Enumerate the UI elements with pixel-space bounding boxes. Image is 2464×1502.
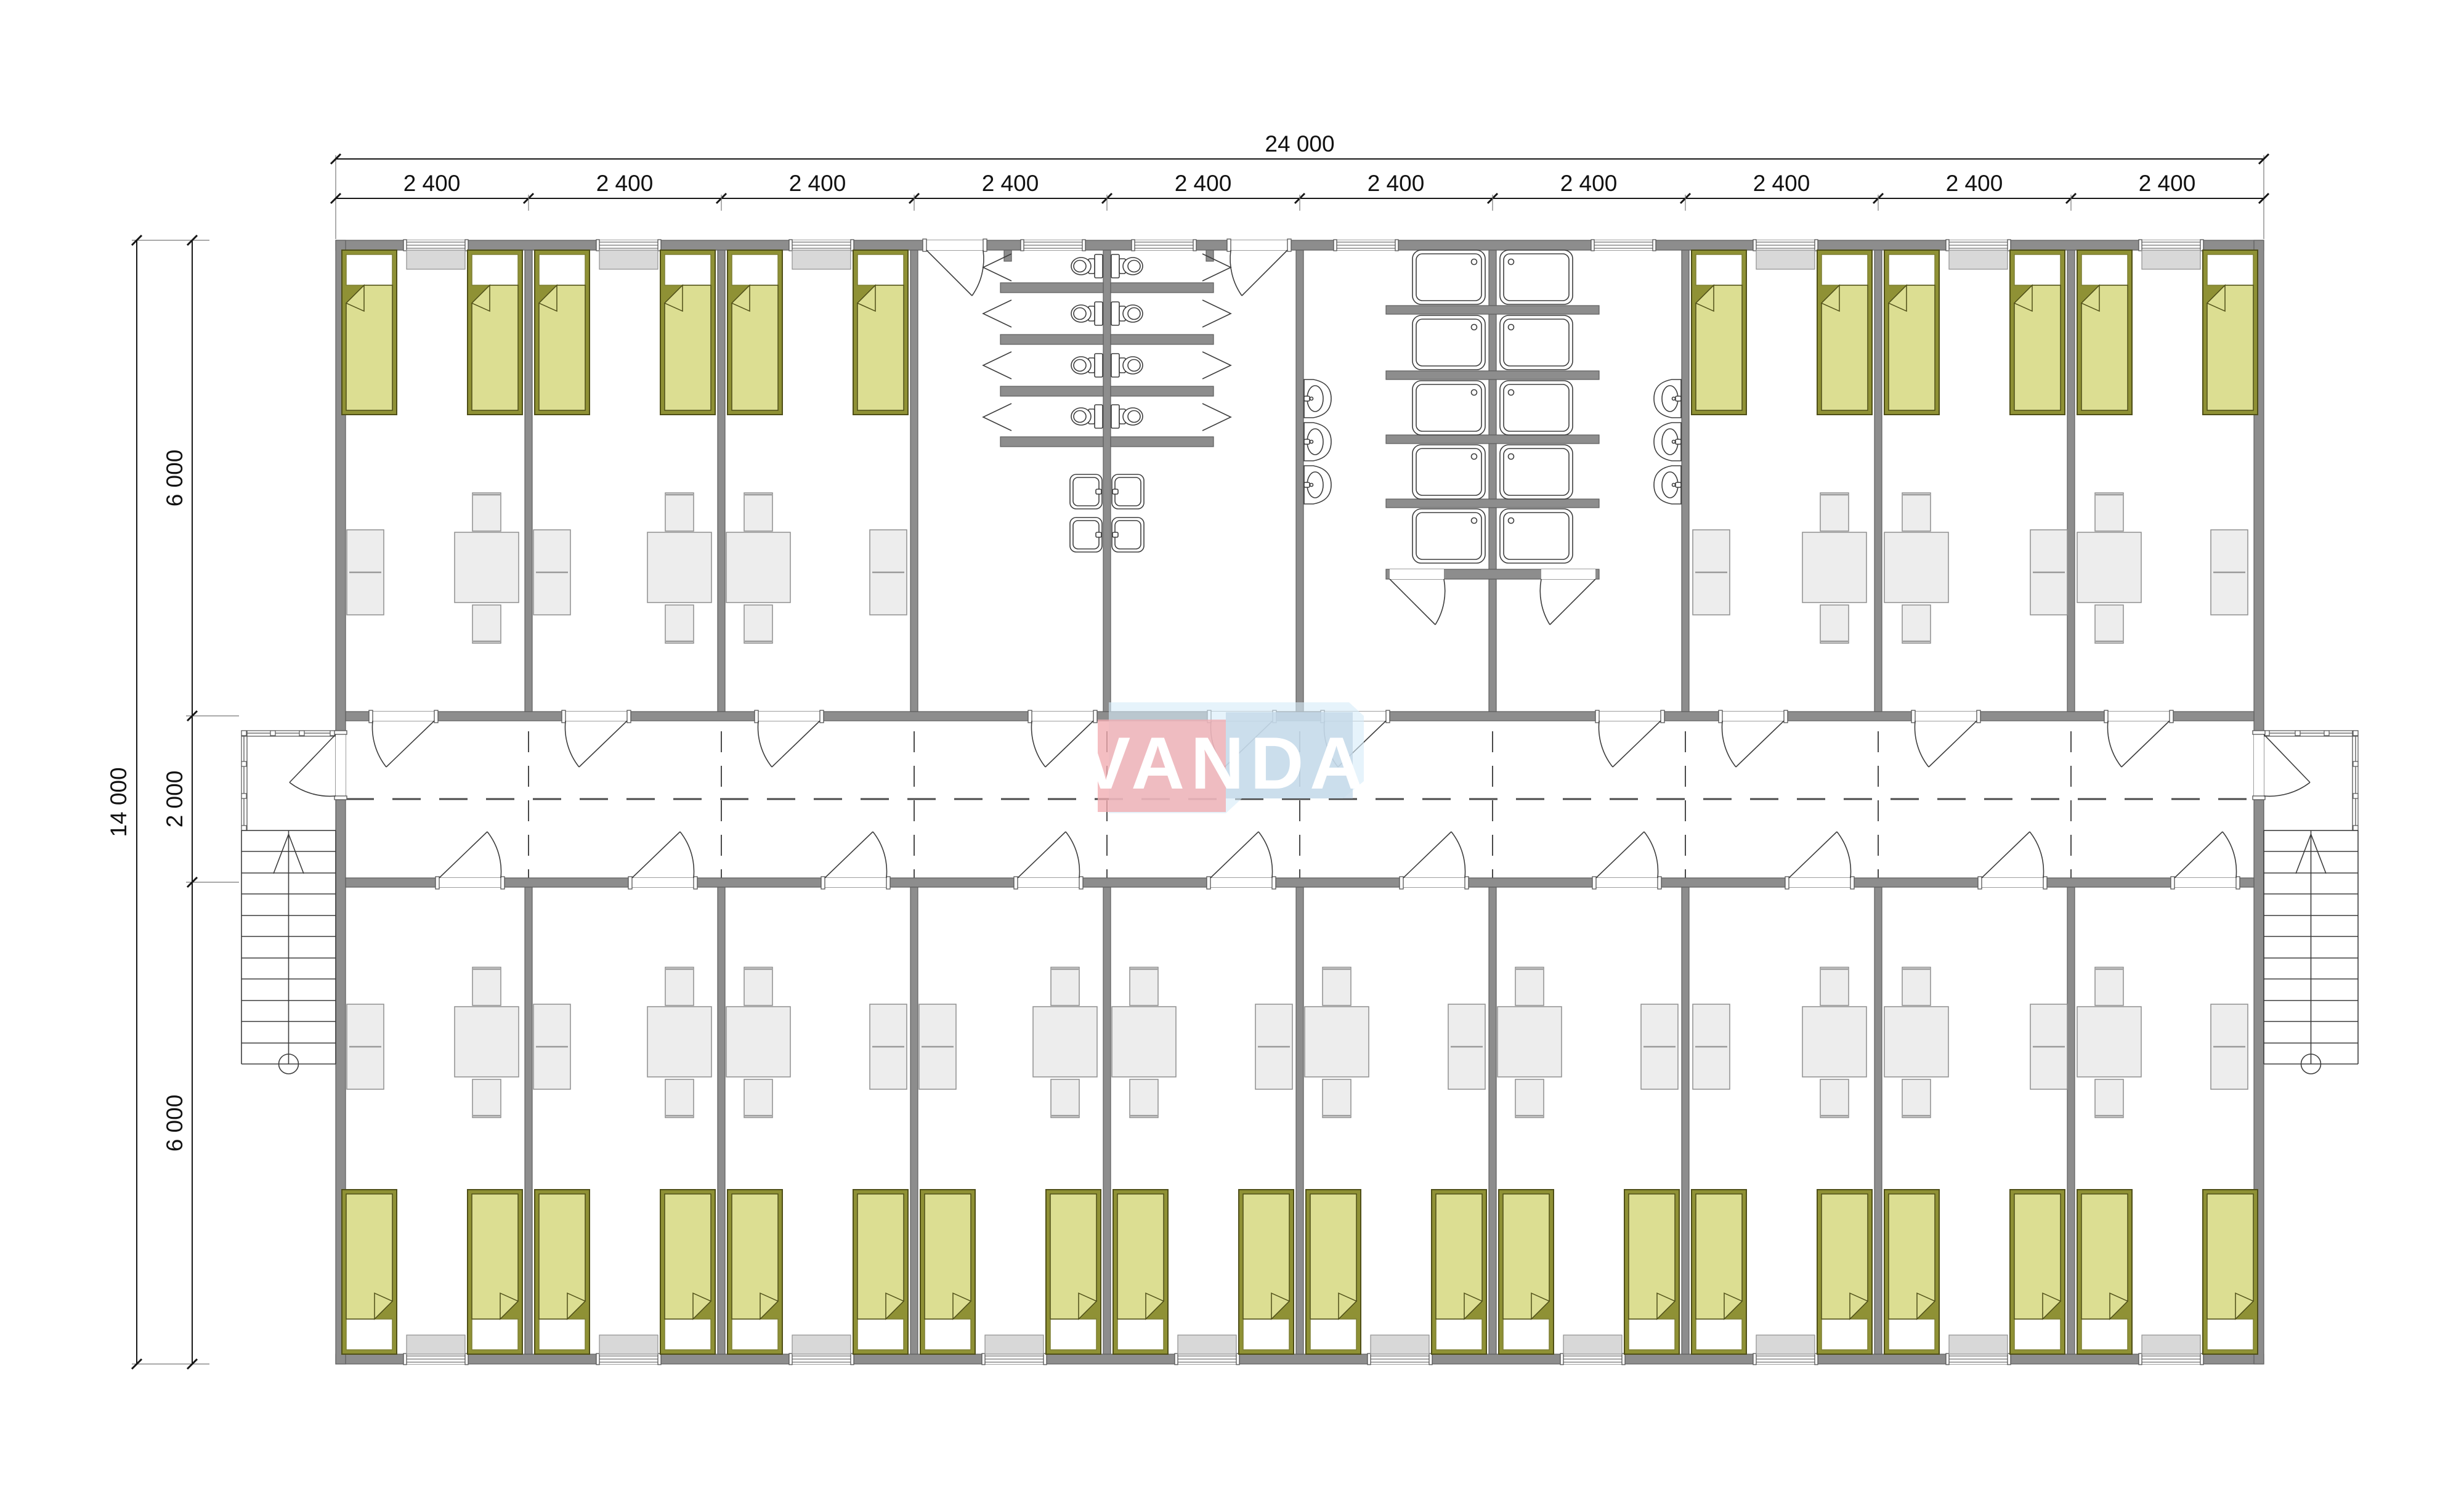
stall-door (983, 352, 1011, 379)
window-sill (1178, 1335, 1236, 1354)
sink (1070, 518, 1102, 552)
window (1753, 240, 1818, 251)
room-door (1592, 832, 1661, 889)
entrance-door-top-left (923, 239, 987, 296)
stall-door (1202, 352, 1231, 379)
table-chairs (647, 967, 711, 1118)
bed (535, 1190, 590, 1354)
bed (853, 1190, 908, 1354)
sink (1112, 474, 1144, 509)
bed (342, 1190, 397, 1354)
dim-segment: 2 400 (1560, 171, 1618, 196)
dimensions-left: 14 000 6 000 2 000 6 000 (106, 235, 239, 1369)
window-sill (407, 250, 465, 269)
table-chairs (455, 493, 519, 643)
bed (1046, 1190, 1101, 1354)
window-sill (2142, 1335, 2200, 1354)
table-chairs (1305, 967, 1369, 1118)
bed (1884, 1190, 1939, 1354)
desk (870, 1004, 907, 1089)
bed (1306, 1190, 1361, 1354)
table-chairs (1802, 967, 1866, 1118)
window (1946, 1354, 2011, 1365)
bed (1499, 1190, 1554, 1354)
window (789, 1354, 854, 1365)
desk (347, 530, 384, 615)
dim-segment: 2 400 (1946, 171, 2003, 196)
dim-segment: 2 000 (162, 771, 187, 828)
shower-tray (1412, 445, 1485, 499)
entrance-door-top-right (1227, 239, 1291, 296)
sanitary-fixtures (1070, 250, 1681, 563)
window (982, 1354, 1047, 1365)
dim-segment: 2 400 (1368, 171, 1425, 196)
dim-segment: 2 400 (1175, 171, 1232, 196)
dim-segment: 6 000 (162, 1095, 187, 1152)
window-sill (792, 250, 851, 269)
window-sill (792, 1335, 851, 1354)
table-chairs (2077, 967, 2141, 1118)
table-chairs (1497, 967, 1562, 1118)
room-door (2171, 832, 2240, 889)
bed (1113, 1190, 1168, 1354)
sink (1112, 518, 1144, 552)
table-chairs (1802, 493, 1866, 643)
dim-left-total: 14 000 (106, 767, 131, 837)
toilet (1071, 354, 1103, 377)
window (1753, 1354, 1818, 1365)
bed (468, 250, 522, 415)
bed (727, 1190, 782, 1354)
dim-segment: 2 400 (403, 171, 461, 196)
shower-tray (1412, 250, 1485, 304)
bed (1817, 250, 1872, 415)
dim-segment: 2 400 (1753, 171, 1810, 196)
bed (1239, 1190, 1294, 1354)
sink (1070, 474, 1102, 509)
room-door (1207, 832, 1276, 889)
desk (919, 1004, 956, 1089)
window (1021, 240, 1085, 251)
bed (2203, 1190, 2258, 1354)
window (2139, 240, 2203, 251)
washbasin (1304, 380, 1331, 418)
bed (2010, 1190, 2065, 1354)
shower-tray (1500, 445, 1573, 499)
window-sill (407, 1335, 465, 1354)
table-chairs (1884, 967, 1948, 1118)
window (596, 240, 661, 251)
desk (2211, 530, 2248, 615)
shower-tray (1500, 381, 1573, 435)
room-door (369, 710, 438, 767)
toilet (1111, 254, 1143, 278)
stall-door (983, 300, 1011, 327)
table-chairs (1884, 493, 1948, 643)
toilet (1071, 254, 1103, 278)
bed (2077, 1190, 2132, 1354)
table-chairs (647, 493, 711, 643)
table-chairs (1033, 967, 1097, 1118)
shower-tray (1412, 315, 1485, 370)
bed (342, 250, 397, 415)
toilet (1071, 405, 1103, 428)
bed (2203, 250, 2258, 415)
washbasin (1654, 466, 1681, 504)
bed (1692, 1190, 1746, 1354)
window (1334, 240, 1398, 251)
window-sill (1371, 1335, 1429, 1354)
dimensions-top: 24 000 2 400 2 400 2 400 2 400 2 400 2 4… (331, 131, 2269, 239)
window (1368, 1354, 1432, 1365)
shower-tray (1500, 250, 1573, 304)
table-chairs (455, 967, 519, 1118)
desk (2211, 1004, 2248, 1089)
room-door (1785, 832, 1854, 889)
room-door (755, 710, 824, 767)
window-sill (599, 250, 658, 269)
floor-plan-canvas: 24 000 2 400 2 400 2 400 2 400 2 400 2 4… (0, 0, 2464, 1502)
desk (347, 1004, 384, 1089)
window (1132, 240, 1196, 251)
desk (533, 1004, 570, 1089)
bed (1432, 1190, 1486, 1354)
bed (2010, 250, 2065, 415)
desk (1448, 1004, 1485, 1089)
window (1560, 1354, 1625, 1365)
window (596, 1354, 661, 1365)
desk (2030, 1004, 2067, 1089)
shower-tray (1412, 381, 1485, 435)
table-chairs (1112, 967, 1176, 1118)
washbasin (1304, 466, 1331, 504)
window (2139, 1354, 2203, 1365)
table-chairs (2077, 493, 2141, 643)
bed (853, 250, 908, 415)
bed (1692, 250, 1746, 415)
stall-door (1202, 404, 1231, 431)
washbasin (1304, 423, 1331, 461)
dim-segment: 2 400 (789, 171, 846, 196)
window (1591, 240, 1656, 251)
desk (1693, 1004, 1730, 1089)
window (789, 240, 854, 251)
window-sill (1949, 250, 2008, 269)
watermark-text: VANDA (1081, 722, 1369, 805)
window-sill (1563, 1335, 1622, 1354)
bed (727, 250, 782, 415)
shower-inner-door-left (1390, 569, 1445, 625)
room-door (2104, 710, 2173, 767)
bed (920, 1190, 975, 1354)
room-door (1911, 710, 1980, 767)
desk (1255, 1004, 1292, 1089)
room-door (562, 710, 631, 767)
shower-tray (1500, 509, 1573, 563)
desk (870, 530, 907, 615)
stair-left (241, 731, 336, 1074)
dim-segment: 2 400 (982, 171, 1039, 196)
washbasin (1654, 423, 1681, 461)
bed (1884, 250, 1939, 415)
room-door (1014, 832, 1083, 889)
window (403, 240, 468, 251)
stair-right (2264, 731, 2358, 1074)
shower-door (1595, 710, 1664, 767)
room-door (436, 832, 505, 889)
shower-inner-door-right (1540, 569, 1595, 625)
bed (660, 250, 715, 415)
stall-door (1202, 300, 1231, 327)
room-door (821, 832, 890, 889)
bed (660, 1190, 715, 1354)
room-door (1978, 832, 2047, 889)
washbasin (1654, 380, 1681, 418)
bed (535, 250, 590, 415)
stall-door (983, 404, 1011, 431)
desk (533, 530, 570, 615)
shower-tray (1500, 315, 1573, 370)
bed (1624, 1190, 1679, 1354)
dim-segment: 6 000 (162, 450, 187, 507)
desk (1641, 1004, 1678, 1089)
window (1175, 1354, 1239, 1365)
room-door (1719, 710, 1788, 767)
desk (1693, 530, 1730, 615)
window-sill (1756, 250, 1815, 269)
bed (2077, 250, 2132, 415)
window-sill (1949, 1335, 2008, 1354)
bed (468, 1190, 522, 1354)
table-chairs (726, 967, 790, 1118)
table-chairs (726, 493, 790, 643)
dim-segment: 2 400 (596, 171, 654, 196)
toilet (1111, 302, 1143, 325)
dim-segment: 2 400 (2139, 171, 2196, 196)
window-sill (2142, 250, 2200, 269)
window-sill (599, 1335, 658, 1354)
window (1946, 240, 2011, 251)
toilet (1111, 405, 1143, 428)
room-door (628, 832, 697, 889)
window-sill (1756, 1335, 1815, 1354)
toilet (1071, 302, 1103, 325)
shower-tray (1412, 509, 1485, 563)
window-sill (985, 1335, 1044, 1354)
toilet (1111, 354, 1143, 377)
bed (1817, 1190, 1872, 1354)
dim-top-total: 24 000 (1265, 131, 1334, 156)
window (403, 1354, 468, 1365)
watermark: VANDA (1081, 702, 1369, 813)
desk (2030, 530, 2067, 615)
room-door (1400, 832, 1469, 889)
